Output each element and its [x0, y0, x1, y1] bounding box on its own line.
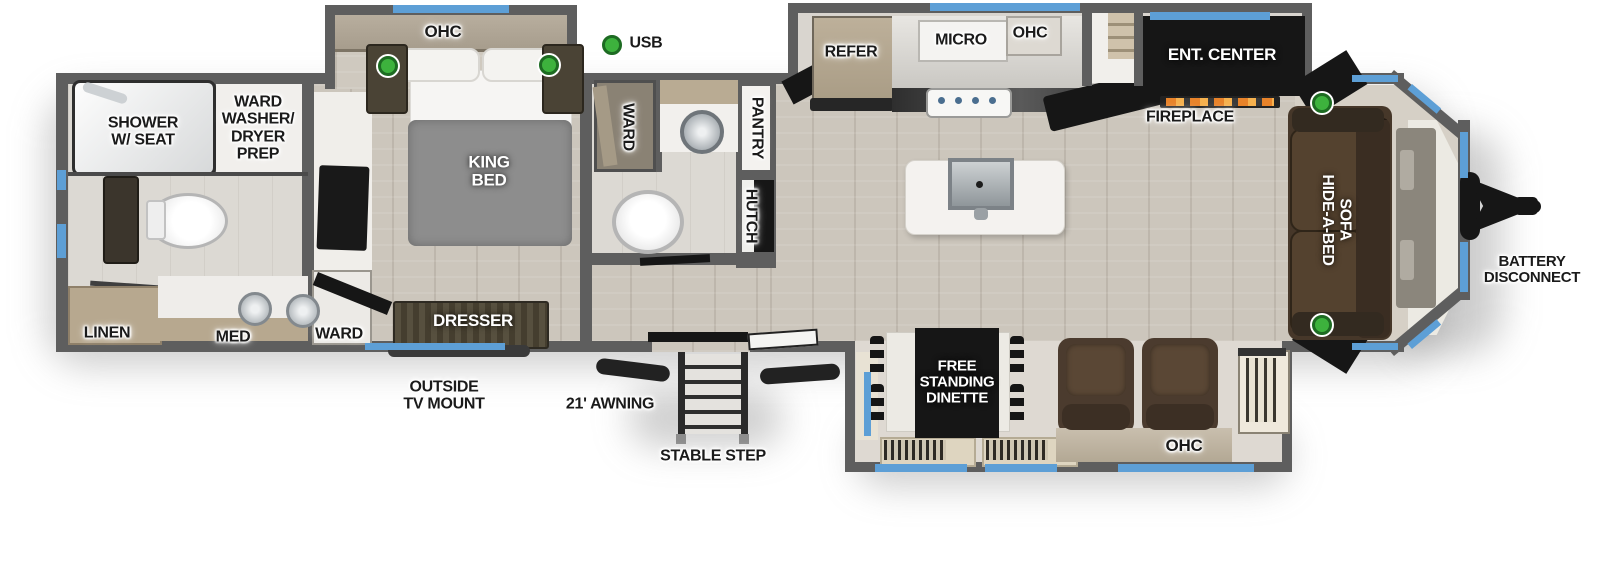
- stable-step-left-rail: [678, 352, 685, 438]
- loft-steps: [1108, 13, 1134, 59]
- living-ohc-label: OHC: [1166, 437, 1203, 455]
- recliner-left-seat: [1066, 344, 1126, 396]
- med-label: MED: [216, 328, 251, 345]
- sofa-arm-top: [1292, 108, 1384, 132]
- micro-label: MICRO: [935, 31, 987, 48]
- ent-center-window: [1150, 12, 1270, 20]
- rv-floorplan: USB OHC SHOWER W/ SEAT WARD WASHER/ DRYE…: [0, 0, 1600, 566]
- bed-pillow-left: [398, 48, 480, 82]
- hall-floor: [588, 255, 770, 342]
- steps-wall-right: [1134, 10, 1143, 86]
- mid-ward-label: WARD: [619, 103, 636, 151]
- bedroom-bottom-window: [365, 343, 505, 350]
- linen-label: LINEN: [84, 324, 131, 341]
- entry-threshold: [648, 332, 748, 342]
- sofa-arm-bottom: [1292, 312, 1384, 336]
- rear-window-1: [57, 170, 66, 190]
- bedroom-slide-window: [393, 5, 509, 13]
- rear-window-2: [57, 224, 66, 258]
- usb-legend-dot: [602, 35, 622, 55]
- rear-bath-divider-line: [68, 172, 308, 176]
- battery-disconnect-label: BATTERY DISCONNECT: [1484, 254, 1580, 286]
- stable-step-foot-right: [739, 434, 749, 444]
- louvered-ward-top: [1238, 348, 1286, 356]
- outside-tv-label: OUTSIDE TV MOUNT: [403, 379, 484, 414]
- island-faucet: [974, 208, 988, 220]
- front-bottom-window: [1352, 343, 1398, 350]
- front-top-window: [1352, 75, 1398, 82]
- awning-label: 21' AWNING: [566, 395, 654, 412]
- dinette-window-1: [875, 464, 967, 472]
- shower-label: SHOWER W/ SEAT: [108, 115, 178, 150]
- stable-step-label: STABLE STEP: [660, 447, 766, 464]
- rear-bath-cabinet: [103, 176, 139, 264]
- usb-indicator-sofa-top: [1312, 93, 1332, 113]
- bedroom-tv: [317, 165, 370, 251]
- louvered-ward-slats: [1246, 358, 1276, 422]
- recliner-right-back: [1146, 404, 1214, 430]
- mid-toilet: [612, 190, 684, 254]
- refer-base: [810, 98, 894, 111]
- rear-sink-2: [286, 294, 320, 328]
- usb-indicator-bed-right: [539, 55, 559, 75]
- ward-washer-dryer-label: WARD WASHER/ DRYER PREP: [222, 93, 295, 162]
- hide-a-bed-label: HIDE-A-BED SOFA: [1319, 174, 1354, 265]
- stove-burner-2: [955, 97, 962, 104]
- refer-label: REFER: [825, 43, 878, 60]
- kitchen-slide-window: [930, 3, 1080, 11]
- stove-burner-1: [938, 97, 945, 104]
- slide-pillar-window: [864, 372, 871, 436]
- rear-sink-1: [238, 292, 272, 326]
- dinette-label: FREE STANDING DINETTE: [920, 359, 995, 408]
- dinette-chair-4: [1010, 384, 1024, 424]
- stove-burner-4: [989, 97, 996, 104]
- dresser-label: DRESSER: [433, 312, 513, 330]
- dinette-window-3: [1118, 464, 1254, 472]
- sofa-console-tray-1: [1400, 150, 1414, 190]
- hutch-label: HUTCH: [742, 189, 759, 244]
- usb-legend-label: USB: [630, 34, 663, 51]
- ent-center-label: ENT. CENTER: [1168, 46, 1276, 64]
- sofa-console-tray-2: [1400, 240, 1414, 280]
- entry-floor-patch: [650, 341, 752, 352]
- dinette-chair-3: [1010, 336, 1024, 376]
- pantry-label: PANTRY: [748, 97, 765, 159]
- stable-step-treads: [685, 354, 741, 434]
- mid-vanity-backsplash: [660, 80, 738, 106]
- slide-bench-left-blinds: [884, 440, 946, 460]
- dinette-window-2: [985, 464, 1057, 472]
- slide-bench-right-blinds: [986, 440, 1048, 460]
- mid-sink: [680, 110, 724, 154]
- dinette-chair-1: [870, 336, 884, 376]
- rear-toilet-tank: [146, 200, 166, 240]
- island-sink-drain: [976, 181, 983, 188]
- fireplace-label: FIREPLACE: [1146, 108, 1234, 125]
- living-ohc-cabinet: [1056, 428, 1232, 462]
- bedroom-ohc-label: OHC: [425, 23, 462, 41]
- hitch-knob: [1528, 200, 1541, 213]
- recliner-right-seat: [1150, 344, 1210, 396]
- usb-indicator-sofa-bottom: [1312, 315, 1332, 335]
- nose-window-upper: [1460, 132, 1468, 178]
- sofa-back: [1356, 118, 1390, 338]
- stove-burner-3: [972, 97, 979, 104]
- nightstand-left: [366, 44, 408, 114]
- fireplace-flames: [1166, 98, 1274, 106]
- usb-indicator-bed-left: [378, 56, 398, 76]
- kitchen-ohc-label: OHC: [1013, 24, 1048, 41]
- stable-step-foot-left: [676, 434, 686, 444]
- steps-wall-left: [1082, 10, 1092, 86]
- nose-window-lower: [1460, 242, 1468, 292]
- rear-wall: [56, 73, 68, 352]
- dinette-chair-2: [870, 384, 884, 424]
- bedroom-ward-label: WARD: [315, 325, 363, 342]
- stable-step-right-rail: [741, 352, 748, 438]
- king-bed-label: KING BED: [468, 154, 509, 191]
- recliner-left-back: [1062, 404, 1130, 430]
- bedroom-bath2-wall: [580, 75, 592, 352]
